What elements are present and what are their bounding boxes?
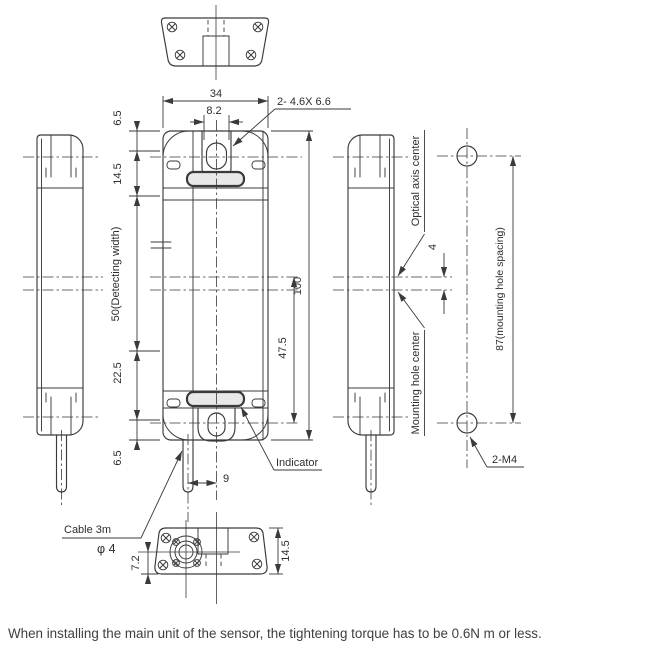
mounting-center-text: Mounting hole center (410, 331, 422, 434)
dim-bottom-depth: 7.2 (130, 543, 158, 583)
screw-icon (194, 539, 201, 546)
dim-indicator-offset-text: 47.5 (277, 337, 289, 358)
dim-bottom-height-text: 14.5 (280, 540, 292, 561)
cable-diameter-text: φ 4 (97, 542, 116, 556)
screw-icon (158, 560, 168, 570)
dim-body-height: 100 (271, 131, 313, 440)
dim-cable-offset-text: 9 (223, 473, 229, 485)
label-hole-thread: 2-M4 (470, 437, 524, 467)
dim-indicator-offset: 47.5 (277, 277, 294, 423)
dim-left-column: 6.5 14.5 50(Detecting width) 22.5 6.5 (110, 110, 160, 465)
indicator-window-top (187, 172, 244, 186)
cable-front (183, 440, 193, 492)
installation-note: When installing the main unit of the sen… (8, 626, 652, 641)
screw-icon (246, 50, 256, 60)
dim-bottom-height: 14.5 (269, 528, 292, 574)
slot-spec-text: 2- 4.6X 6.6 (277, 96, 331, 108)
screw-icon (194, 560, 201, 567)
dim-margin-top-text: 6.5 (112, 110, 124, 125)
label-mounting-center: Mounting hole center (398, 292, 425, 436)
hole-thread-text: 2-M4 (492, 454, 517, 466)
dim-upper-section-text: 14.5 (112, 163, 124, 184)
indicator-window-bottom (187, 392, 244, 406)
screw-icon (173, 560, 180, 567)
dim-axis-gap-text: 4 (427, 244, 439, 250)
label-optical-axis: Optical axis center (398, 130, 425, 276)
dimensional-drawing-page: 34 8.2 2- 4.6X 6.6 (0, 0, 656, 661)
right-side-view (333, 135, 452, 505)
dim-body-width-text: 34 (210, 88, 222, 100)
left-side-view (23, 135, 103, 505)
screw-icon (175, 50, 185, 60)
dim-cable-offset: 9 (188, 473, 229, 485)
screw-icon (167, 22, 177, 32)
dim-slot-width-text: 8.2 (206, 105, 221, 117)
label-indicator: Indicator (241, 407, 322, 470)
label-slot-spec: 2- 4.6X 6.6 (233, 96, 351, 146)
indicator-label-text: Indicator (276, 457, 319, 469)
dim-detecting-width-text: 50(Detecting width) (110, 227, 122, 322)
dim-lower-section-text: 22.5 (112, 362, 124, 383)
dim-axis-gap: 4 (427, 244, 444, 314)
screw-icon (253, 22, 263, 32)
dim-margin-bottom-text: 6.5 (112, 450, 124, 465)
top-view (161, 5, 268, 80)
optical-axis-text: Optical axis center (410, 135, 422, 226)
dim-bottom-depth-text: 7.2 (130, 555, 142, 570)
dim-hole-spacing-text: 87(mounting hole spacing) (494, 227, 506, 351)
cable-length-text: Cable 3m (64, 524, 111, 536)
mounting-hole-pattern: 87(mounting hole spacing) 2-M4 (437, 128, 524, 468)
bottom-view: 7.2 14.5 (130, 512, 292, 604)
technical-drawing-canvas: 34 8.2 2- 4.6X 6.6 (0, 0, 656, 620)
screw-icon (161, 533, 171, 543)
screw-icon (252, 559, 262, 569)
screw-icon (249, 532, 259, 542)
